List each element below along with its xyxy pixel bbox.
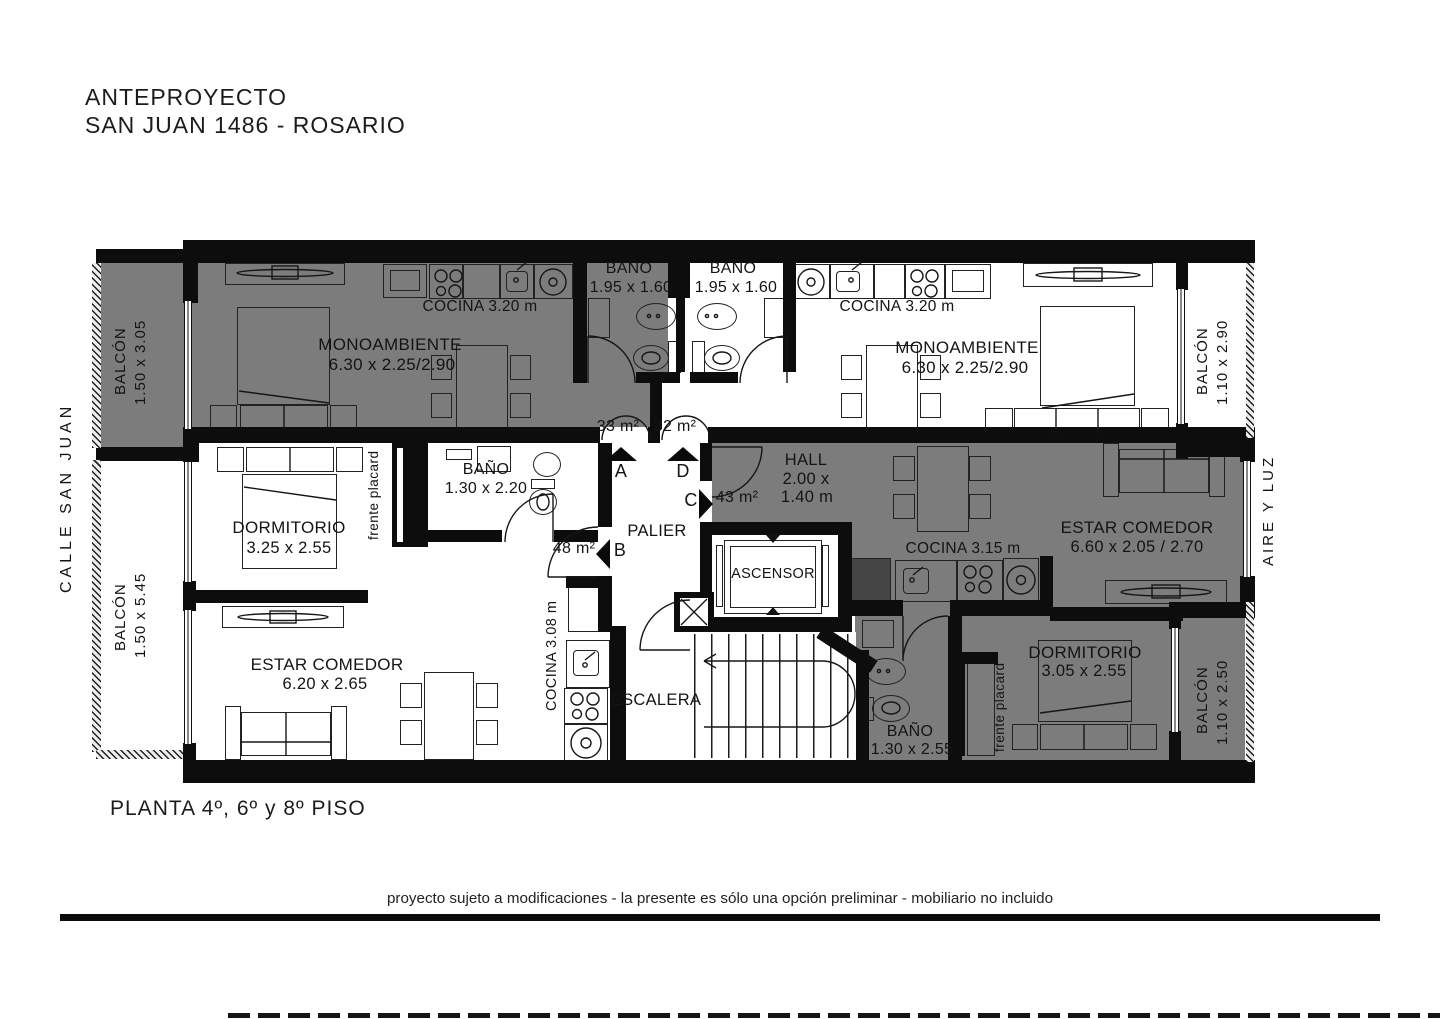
- chair: [893, 494, 915, 519]
- bedroom-label: DORMITORIO: [232, 519, 345, 537]
- counter: [463, 264, 500, 299]
- escalera-label: ESCALERA: [611, 692, 701, 709]
- entry-arrow-icon: [596, 539, 610, 569]
- wall: [690, 372, 738, 383]
- wall: [183, 427, 600, 443]
- chair: [920, 393, 941, 418]
- wall: [1169, 731, 1181, 762]
- washer: [1003, 558, 1039, 602]
- placard-wall-stripe: [397, 448, 403, 542]
- hatch-edge: [1246, 263, 1254, 438]
- stair-treads: [694, 634, 854, 758]
- wall: [1240, 576, 1255, 602]
- chair: [893, 456, 915, 481]
- chair: [841, 393, 862, 418]
- unit-area: 48 m²: [553, 541, 595, 558]
- unit-area: 43 m²: [716, 490, 758, 507]
- chair: [841, 355, 862, 380]
- disclaimer: proyecto sujeto a modificaciones - la pr…: [387, 890, 1053, 907]
- bath-label: BAÑO: [606, 261, 653, 278]
- living-dims: 6.20 x 2.65: [283, 676, 368, 693]
- window: [1243, 461, 1251, 577]
- hall-label: HALL: [785, 452, 827, 469]
- wall: [96, 447, 183, 461]
- wall: [428, 530, 502, 542]
- bath-label: BAÑO: [710, 261, 757, 278]
- dining-table: [917, 446, 969, 532]
- bath-label: BAÑO: [887, 724, 934, 741]
- chair: [476, 683, 498, 708]
- living-label: ESTAR COMEDOR: [251, 656, 404, 674]
- chair: [400, 720, 422, 745]
- unit-letter: C: [684, 491, 697, 510]
- wall: [1169, 602, 1181, 629]
- wall: [1240, 437, 1255, 462]
- wall: [1176, 263, 1188, 290]
- wall: [566, 576, 612, 588]
- unit-letter: D: [676, 462, 689, 481]
- bath-dims: 1.95 x 1.60: [695, 280, 777, 297]
- bidet: [636, 303, 676, 330]
- bed-bench: [1040, 724, 1128, 750]
- hatch-edge: [96, 750, 183, 759]
- stove: [905, 264, 945, 299]
- air-light-label: AIRE Y LUZ: [1260, 448, 1277, 573]
- sofa: [241, 712, 331, 756]
- title-line-1: ANTEPROYECTO: [85, 83, 406, 111]
- wall: [856, 650, 869, 760]
- bed: [237, 307, 330, 405]
- floor-name: PLANTA 4º, 6º y 8º PISO: [110, 797, 366, 821]
- toilet: [529, 489, 557, 515]
- side-table: [1012, 724, 1038, 750]
- wall: [852, 600, 903, 616]
- living-dims: 6.60 x 2.05 / 2.70: [1071, 539, 1204, 556]
- hatch-edge: [1246, 602, 1254, 762]
- wall: [183, 263, 198, 303]
- kitchen-label: COCINA 3.20 m: [422, 299, 537, 315]
- room-label: MONOAMBIENTE: [895, 339, 1038, 357]
- title-line-2: SAN JUAN 1486 - ROSARIO: [85, 111, 406, 139]
- kitchen-sink-basin: [573, 650, 599, 676]
- stove: [957, 560, 1003, 602]
- living-label: ESTAR COMEDOR: [1061, 519, 1214, 537]
- wall: [712, 522, 852, 535]
- toilet-tank: [531, 479, 555, 489]
- tv-console: [222, 606, 344, 628]
- kitchen-label: COCINA 3.20 m: [839, 299, 954, 315]
- ascensor-label: ASCENSOR: [731, 567, 815, 582]
- bath-dims: 1.30 x 2.20: [445, 481, 527, 498]
- wall: [1181, 602, 1255, 618]
- wall: [950, 600, 1040, 616]
- bath-dims: 1.30 x 2.55: [871, 742, 953, 759]
- window: [1171, 628, 1179, 732]
- kitchen-cabinet-inner: [390, 270, 420, 291]
- counter: [874, 264, 905, 299]
- fridge: [847, 558, 891, 602]
- hatch-edge: [92, 263, 101, 448]
- balcony-label: BALCÓN: [1194, 640, 1211, 760]
- bath-label: BAÑO: [463, 462, 510, 479]
- bath-vanity: [862, 620, 894, 648]
- bidet: [533, 452, 561, 477]
- kitchen-label: COCINA 3.15 m: [905, 541, 1020, 557]
- balcony-dims: 1.50 x 3.05: [132, 288, 149, 436]
- wall: [183, 760, 1255, 783]
- placard: [246, 447, 334, 472]
- kitchen-label: COCINA 3.08 m: [544, 590, 560, 722]
- room-dims: 6.30 x 2.25/2.90: [902, 359, 1029, 377]
- toilet: [633, 345, 669, 371]
- side-table: [336, 447, 363, 472]
- tv-shelf: [225, 263, 345, 285]
- toilet: [704, 345, 740, 371]
- sofa-arm: [225, 706, 241, 760]
- bath-shelf: [446, 449, 472, 460]
- elevator-rail: [822, 545, 829, 607]
- stove: [429, 264, 463, 299]
- wall: [708, 427, 1255, 443]
- elevator-rail: [716, 545, 723, 607]
- sheet-title: ANTEPROYECTO SAN JUAN 1486 - ROSARIO: [85, 83, 406, 139]
- stove: [564, 688, 608, 724]
- balcony-dims: 1.10 x 2.50: [1214, 632, 1231, 772]
- kitchen-sink-basin: [836, 271, 860, 292]
- placard: [967, 660, 995, 756]
- unit-a-passage-floor: [573, 383, 587, 427]
- entry-arrow-icon: [699, 489, 713, 519]
- washer: [792, 264, 830, 299]
- dining-table: [456, 345, 508, 429]
- entry-arrow-icon: [667, 447, 699, 461]
- sofa-arm: [1103, 443, 1119, 497]
- toilet-tank: [692, 341, 705, 373]
- chair: [969, 494, 991, 519]
- balcony-label: BALCÓN: [112, 552, 129, 682]
- footer-rule: [60, 914, 1380, 921]
- balcony-label: BALCÓN: [1194, 296, 1211, 426]
- side-table: [217, 447, 244, 472]
- room-label: MONOAMBIENTE: [318, 336, 461, 354]
- wall: [700, 443, 712, 481]
- balcony-dims: 1.50 x 5.45: [132, 540, 149, 690]
- sofa-arm: [331, 706, 347, 760]
- bed: [1040, 306, 1135, 406]
- unit-letter: A: [615, 462, 627, 481]
- wall: [952, 655, 965, 756]
- kitchen-sink-basin: [506, 271, 528, 292]
- elevator-shaft-box-inner: [680, 598, 708, 626]
- balcony-dims: 1.10 x 2.90: [1214, 288, 1231, 436]
- side-table: [1130, 724, 1157, 750]
- entry-arrow-icon: [605, 447, 637, 461]
- toilet: [872, 695, 910, 722]
- kitchen-sink-basin: [903, 568, 929, 594]
- tv-shelf: [1023, 263, 1153, 287]
- chair: [400, 683, 422, 708]
- bedroom-label: DORMITORIO: [1028, 644, 1141, 662]
- bedroom-dims: 3.05 x 2.55: [1042, 663, 1127, 680]
- kitchen-cabinet-inner: [952, 270, 984, 292]
- placard-label: frente placard: [992, 656, 1007, 758]
- wall: [838, 522, 852, 632]
- wall: [573, 263, 587, 383]
- unit-area: 33 m²: [597, 419, 639, 436]
- bath-sink: [588, 298, 610, 338]
- chair: [476, 720, 498, 745]
- room-dims: 6.30 x 2.25/2.90: [329, 356, 456, 374]
- window: [184, 462, 192, 582]
- washer: [534, 264, 573, 299]
- wall: [676, 298, 685, 372]
- window: [184, 301, 192, 429]
- bottom-edge-strip: [228, 1013, 1440, 1018]
- window: [1177, 289, 1185, 424]
- chair: [969, 456, 991, 481]
- bedroom-dims: 3.25 x 2.55: [247, 540, 332, 557]
- dining-table: [424, 672, 474, 760]
- bath-dims: 1.95 x 1.60: [590, 280, 672, 297]
- chair: [510, 393, 531, 418]
- chair: [431, 393, 452, 418]
- washer: [564, 724, 608, 762]
- unit-area: 32 m²: [654, 419, 696, 436]
- wall: [783, 263, 796, 372]
- window: [184, 610, 192, 744]
- wall: [183, 743, 196, 763]
- door-arc: [740, 336, 787, 383]
- hall-dims: 1.40 m: [781, 489, 833, 506]
- wall: [636, 372, 680, 383]
- balcony-label: BALCÓN: [112, 296, 129, 426]
- wall: [96, 249, 183, 263]
- placard-label: frente placard: [366, 443, 381, 547]
- floor-plan-sheet: ANTEPROYECTO SAN JUAN 1486 - ROSARIO: [0, 0, 1440, 1019]
- tv-console: [1105, 580, 1227, 604]
- chair: [510, 355, 531, 380]
- street-label: CALLE SAN JUAN: [58, 408, 76, 593]
- wall: [1050, 607, 1183, 621]
- tv-wall: [192, 590, 368, 603]
- palier-label: PALIER: [627, 523, 686, 540]
- hatch-edge: [92, 460, 101, 752]
- hall-dims: 2.00 x: [783, 471, 830, 488]
- bidet: [697, 303, 737, 330]
- unit-letter: B: [614, 541, 626, 560]
